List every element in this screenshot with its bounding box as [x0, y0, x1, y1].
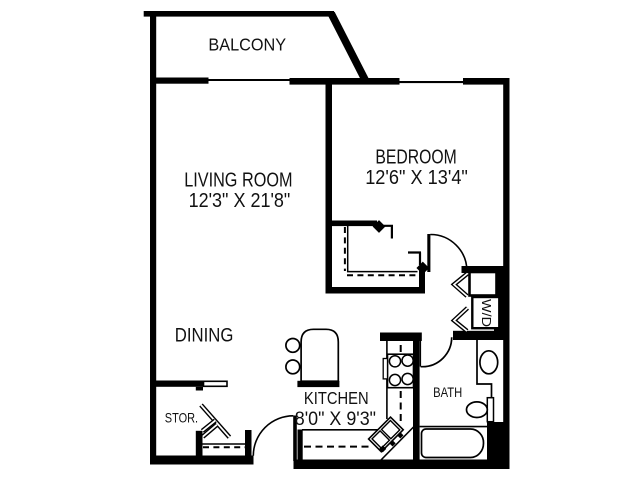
svg-text:W/D: W/D — [479, 299, 493, 327]
svg-text:BATH: BATH — [433, 385, 462, 400]
svg-text:LIVING ROOM: LIVING ROOM — [184, 168, 292, 191]
svg-text:8'0" X 9'3": 8'0" X 9'3" — [295, 409, 376, 430]
svg-text:KITCHEN: KITCHEN — [304, 388, 369, 408]
svg-text:12'6" X 13'4": 12'6" X 13'4" — [365, 166, 468, 189]
svg-text:BALCONY: BALCONY — [208, 35, 286, 55]
svg-text:12'3" X 21'8": 12'3" X 21'8" — [189, 189, 291, 212]
svg-text:STOR.: STOR. — [165, 409, 198, 425]
svg-text:DINING: DINING — [175, 325, 234, 346]
